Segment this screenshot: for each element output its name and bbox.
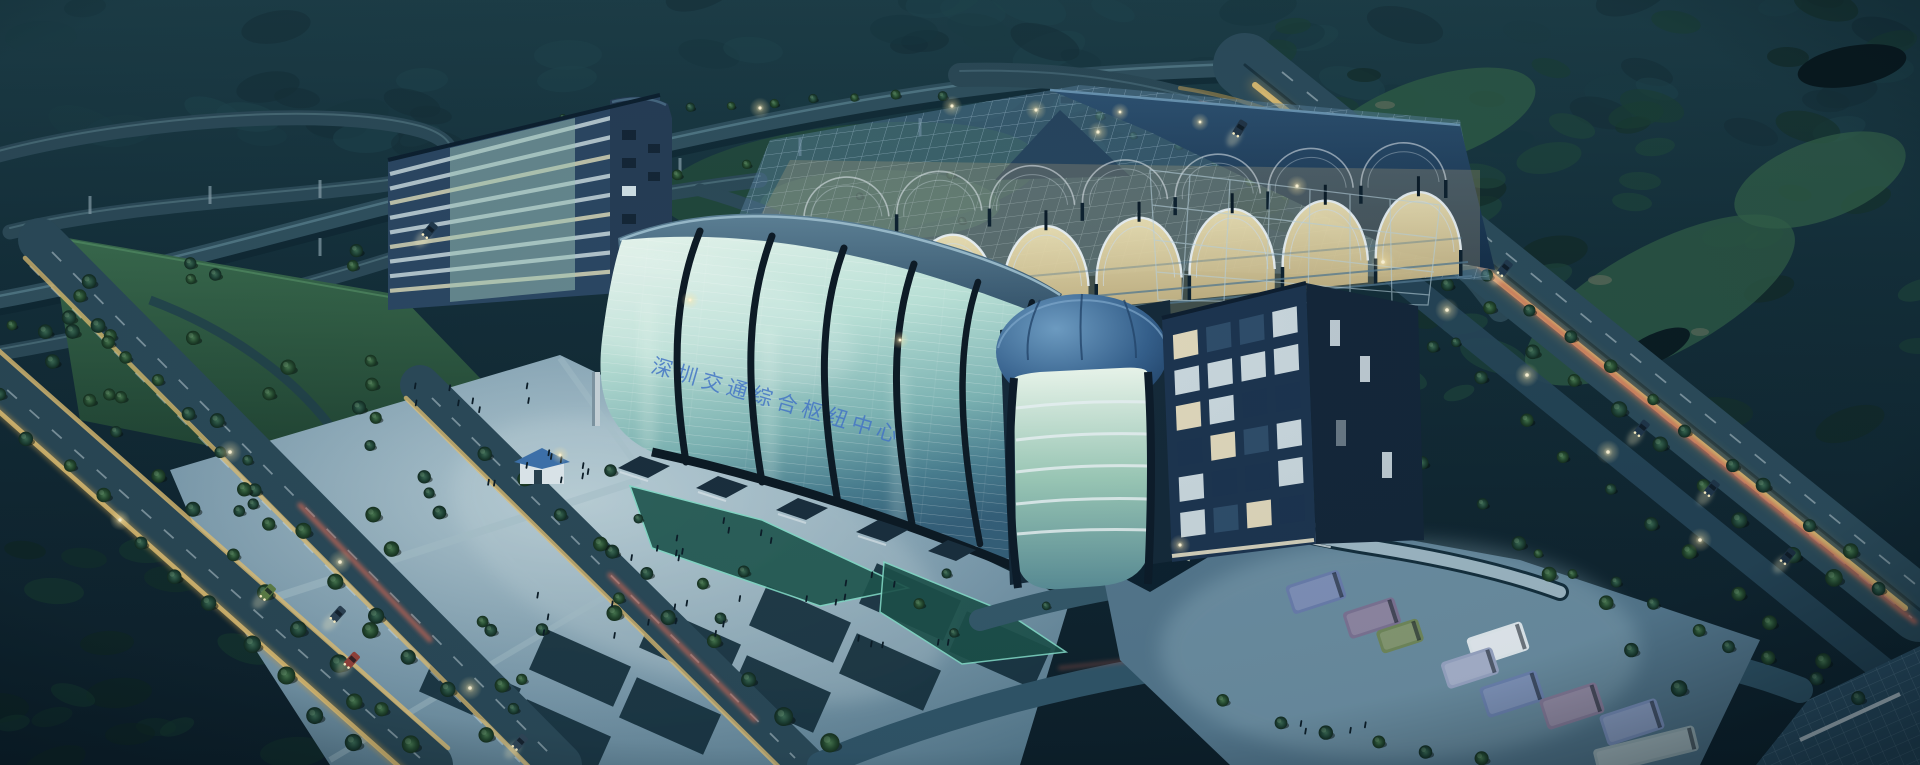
night-aerial-rendering: 深圳交通综合枢纽中心 <box>0 0 1920 765</box>
vignette <box>0 0 1920 765</box>
rendering-canvas: 深圳交通综合枢纽中心 <box>0 0 1920 765</box>
